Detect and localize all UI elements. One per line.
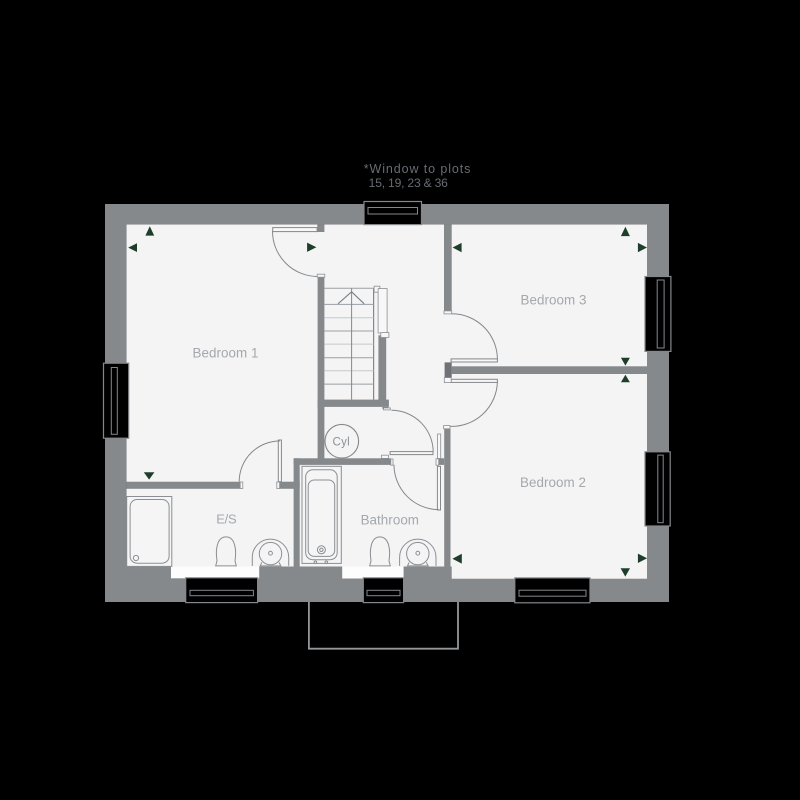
svg-text:Bathroom: Bathroom: [361, 513, 419, 528]
svg-text:15, 19, 23 & 36: 15, 19, 23 & 36: [369, 176, 449, 190]
svg-text:Cyl: Cyl: [333, 437, 351, 449]
svg-text:E/S: E/S: [216, 512, 237, 527]
svg-text:*Window to plots: *Window to plots: [364, 162, 472, 176]
svg-text:Bedroom 3: Bedroom 3: [521, 293, 587, 308]
svg-text:Bedroom 2: Bedroom 2: [520, 475, 586, 490]
svg-text:Bedroom 1: Bedroom 1: [193, 346, 259, 361]
